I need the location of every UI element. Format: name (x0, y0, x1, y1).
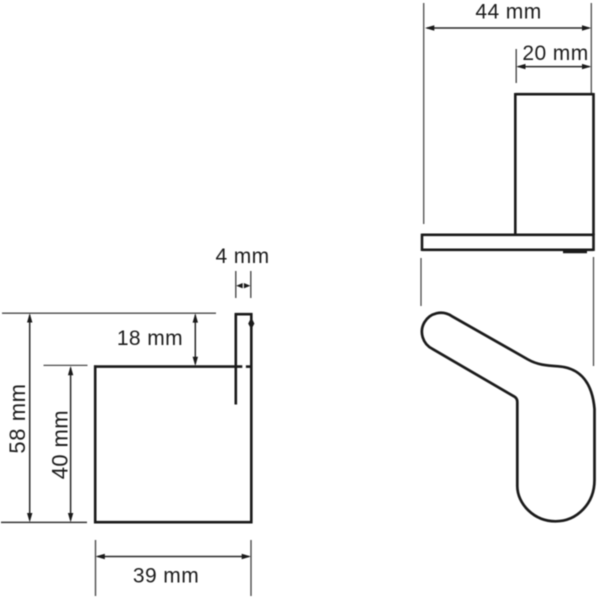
svg-text:58 mm: 58 mm (5, 383, 30, 453)
svg-text:44 mm: 44 mm (475, 0, 541, 23)
svg-text:20 mm: 20 mm (522, 42, 588, 65)
svg-text:18 mm: 18 mm (117, 327, 183, 350)
svg-text:40 mm: 40 mm (48, 410, 73, 479)
svg-text:39 mm: 39 mm (133, 565, 199, 588)
svg-text:4 mm: 4 mm (215, 245, 269, 268)
